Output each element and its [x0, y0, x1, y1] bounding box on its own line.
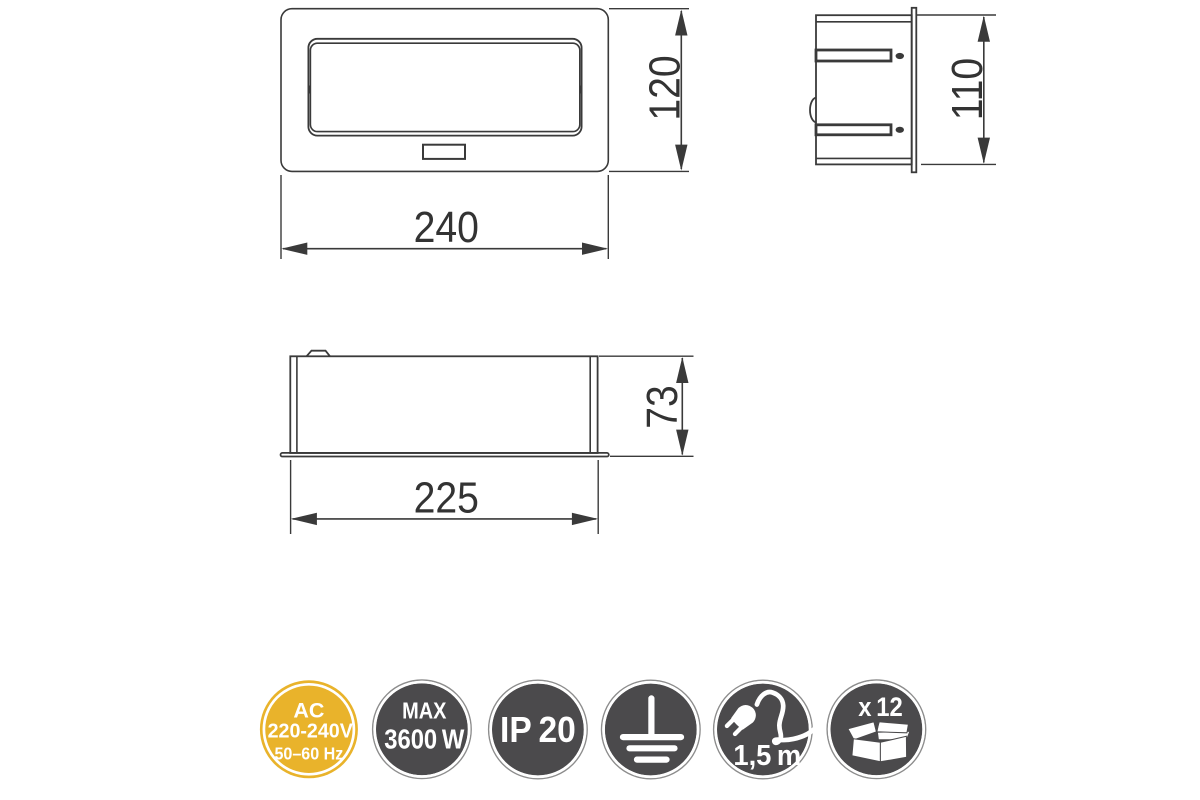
svg-text:MAX: MAX: [402, 697, 447, 724]
svg-text:225: 225: [414, 474, 479, 522]
svg-text:240: 240: [414, 203, 479, 251]
svg-text:50–60 Hz: 50–60 Hz: [274, 744, 343, 764]
svg-text:x 12: x 12: [858, 693, 903, 722]
svg-text:3600 W: 3600 W: [384, 722, 465, 754]
svg-text:110: 110: [943, 58, 991, 120]
svg-text:220-240V: 220-240V: [268, 720, 354, 742]
svg-text:IP 20: IP 20: [500, 710, 576, 751]
svg-text:AC: AC: [293, 699, 324, 723]
svg-text:120: 120: [641, 55, 689, 120]
svg-text:73: 73: [638, 385, 686, 429]
svg-text:1,5 m: 1,5 m: [733, 738, 801, 771]
